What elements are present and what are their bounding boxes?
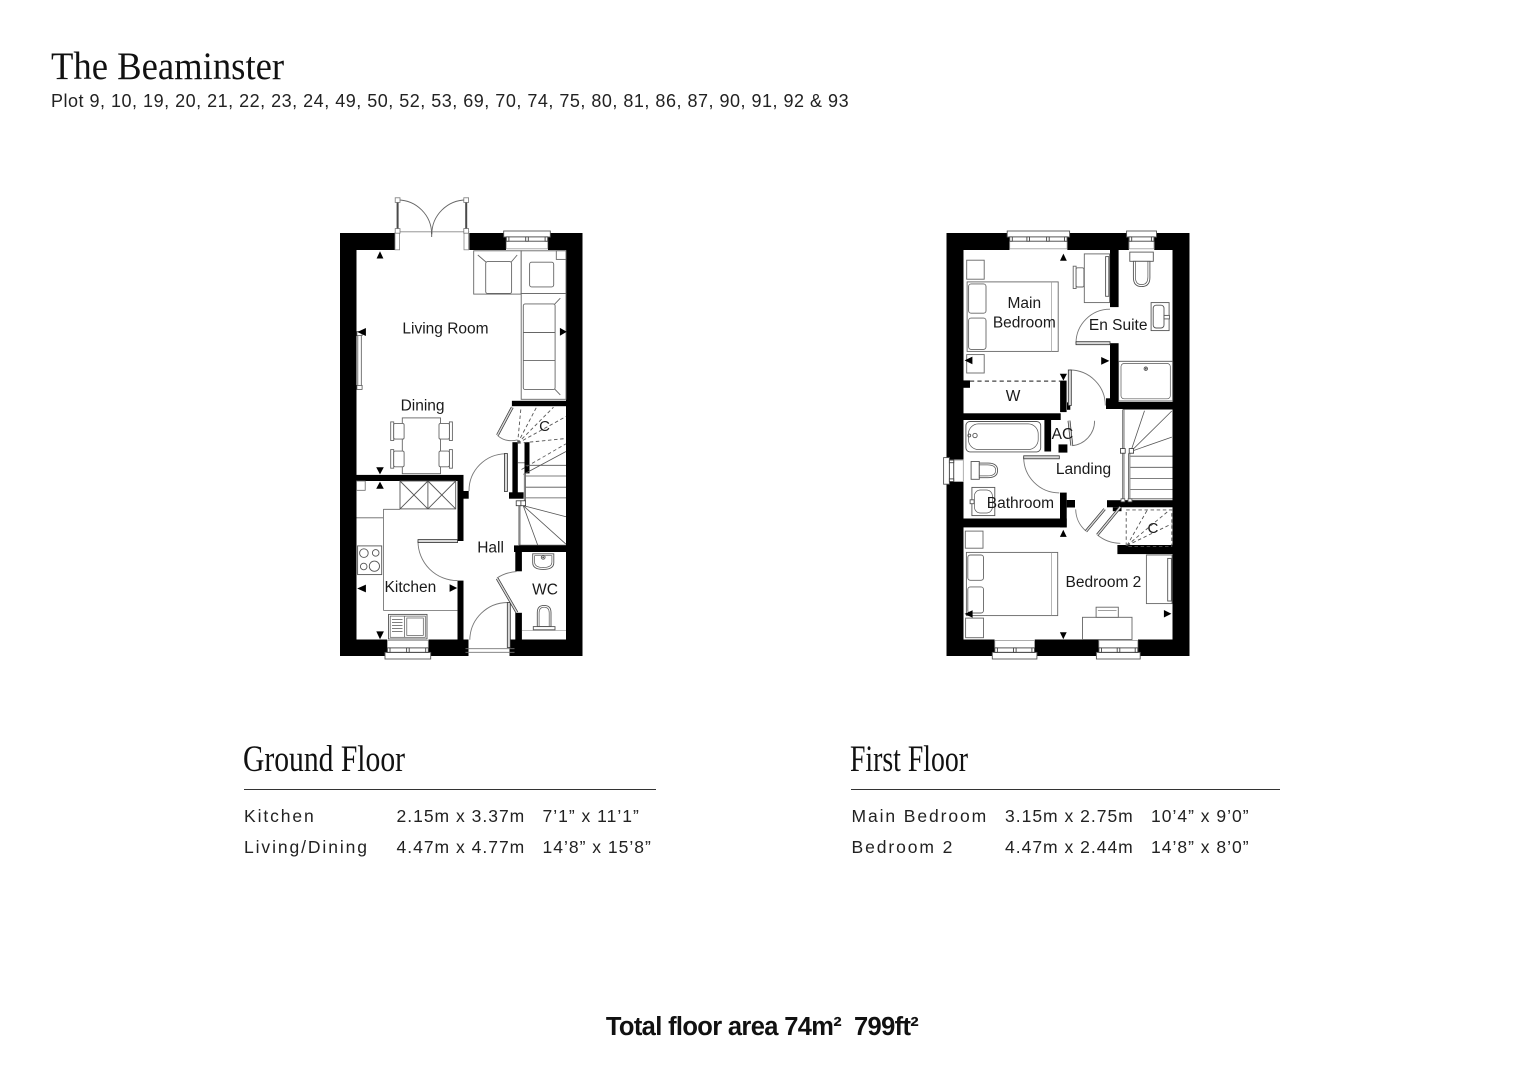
svg-text:Main: Main — [1007, 295, 1041, 312]
svg-text:Bedroom 2: Bedroom 2 — [1065, 574, 1141, 591]
svg-text:Hall: Hall — [477, 540, 504, 557]
svg-text:Bathroom: Bathroom — [987, 495, 1054, 512]
svg-text:W: W — [1006, 388, 1021, 405]
svg-text:C: C — [1147, 520, 1158, 537]
svg-text:Dining: Dining — [401, 398, 445, 415]
svg-text:Living Room: Living Room — [402, 321, 488, 338]
svg-text:C: C — [539, 418, 550, 435]
svg-text:En Suite: En Suite — [1089, 317, 1148, 334]
svg-text:Landing: Landing — [1056, 461, 1111, 478]
svg-text:WC: WC — [532, 582, 558, 599]
svg-text:AC: AC — [1052, 426, 1074, 443]
svg-text:Kitchen: Kitchen — [385, 579, 437, 596]
svg-text:Bedroom: Bedroom — [993, 315, 1056, 332]
